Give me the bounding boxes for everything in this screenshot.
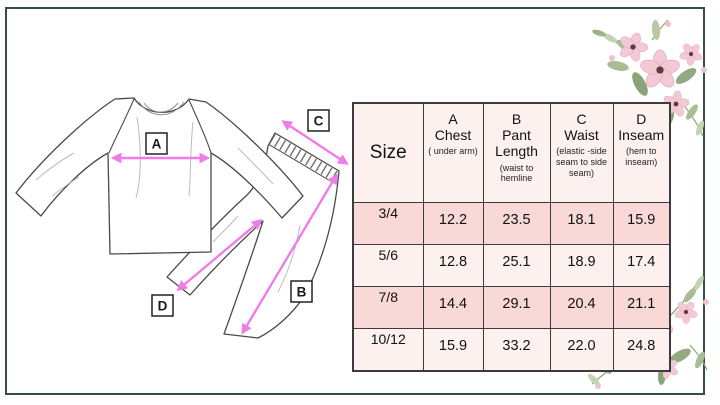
waist-cell: 22.0: [550, 329, 613, 372]
table-row-size-5-6: 5/6 12.8 25.1 18.9 17.4: [353, 245, 670, 287]
col-letter: D: [618, 112, 666, 127]
chest-cell: 12.2: [423, 203, 483, 245]
col-note: (hem to inseam): [618, 146, 666, 168]
pant-length-cell: 29.1: [483, 287, 550, 329]
size-chart-table: Size A Chest ( under arm) B Pant Length …: [352, 102, 671, 372]
chest-cell: 12.8: [423, 245, 483, 287]
col-letter: C: [555, 112, 609, 127]
col-name: Chest: [428, 127, 479, 143]
size-cell: 3/4: [353, 203, 423, 245]
inseam-cell: 17.4: [613, 245, 670, 287]
col-header-inseam: D Inseam (hem to inseam): [613, 103, 670, 203]
col-header-waist: C Waist (elastic -side seam to side seam…: [550, 103, 613, 203]
chest-cell: 15.9: [423, 329, 483, 372]
label-d-text: D: [158, 299, 168, 314]
waist-cell: 18.9: [550, 245, 613, 287]
pant-length-cell: 23.5: [483, 203, 550, 245]
size-chart-page: A C B D Size A Chest ( under arm) B: [0, 0, 720, 405]
col-header-size: Size: [353, 103, 423, 203]
size-cell: 10/12: [353, 329, 423, 372]
table-row-size-3-4: 3/4 12.2 23.5 18.1 15.9: [353, 203, 670, 245]
col-note: (waist to hemline: [488, 163, 546, 185]
col-name: Waist: [555, 127, 609, 143]
label-c-text: C: [314, 114, 324, 129]
label-a-text: A: [152, 137, 162, 152]
header-row: Size A Chest ( under arm) B Pant Length …: [353, 103, 670, 203]
pant-length-cell: 33.2: [483, 329, 550, 372]
col-letter: B: [488, 112, 546, 127]
col-note: (elastic -side seam to side seam): [555, 146, 609, 178]
col-note: ( under arm): [428, 146, 479, 157]
table-row-size-10-12: 10/12 15.9 33.2 22.0 24.8: [353, 329, 670, 372]
inseam-cell: 21.1: [613, 287, 670, 329]
col-name: Pant Length: [488, 127, 546, 159]
col-header-chest: A Chest ( under arm): [423, 103, 483, 203]
col-letter: A: [428, 112, 479, 127]
size-cell: 5/6: [353, 245, 423, 287]
col-header-pant-length: B Pant Length (waist to hemline: [483, 103, 550, 203]
waist-cell: 18.1: [550, 203, 613, 245]
label-b-text: B: [297, 285, 307, 300]
waist-cell: 20.4: [550, 287, 613, 329]
table-row-size-7-8: 7/8 14.4 29.1 20.4 21.1: [353, 287, 670, 329]
inseam-cell: 24.8: [613, 329, 670, 372]
chest-cell: 14.4: [423, 287, 483, 329]
inseam-cell: 15.9: [613, 203, 670, 245]
col-name: Inseam: [618, 127, 666, 143]
pant-length-cell: 25.1: [483, 245, 550, 287]
size-cell: 7/8: [353, 287, 423, 329]
